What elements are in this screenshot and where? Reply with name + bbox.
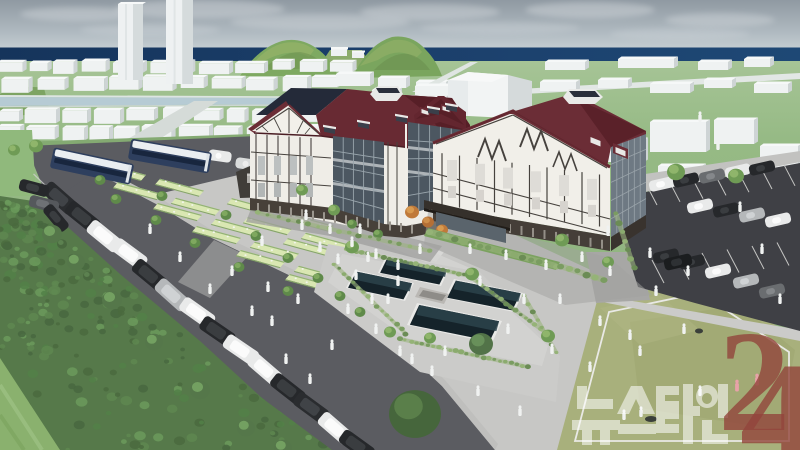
svg-text:4: 4 — [740, 334, 800, 450]
